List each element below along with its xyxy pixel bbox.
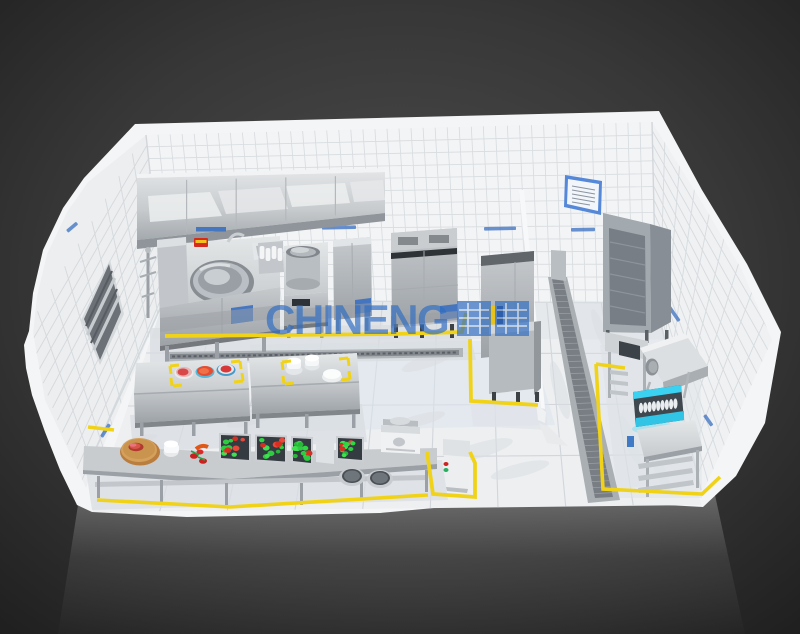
svg-text:CHINENG: CHINENG [265, 296, 448, 343]
